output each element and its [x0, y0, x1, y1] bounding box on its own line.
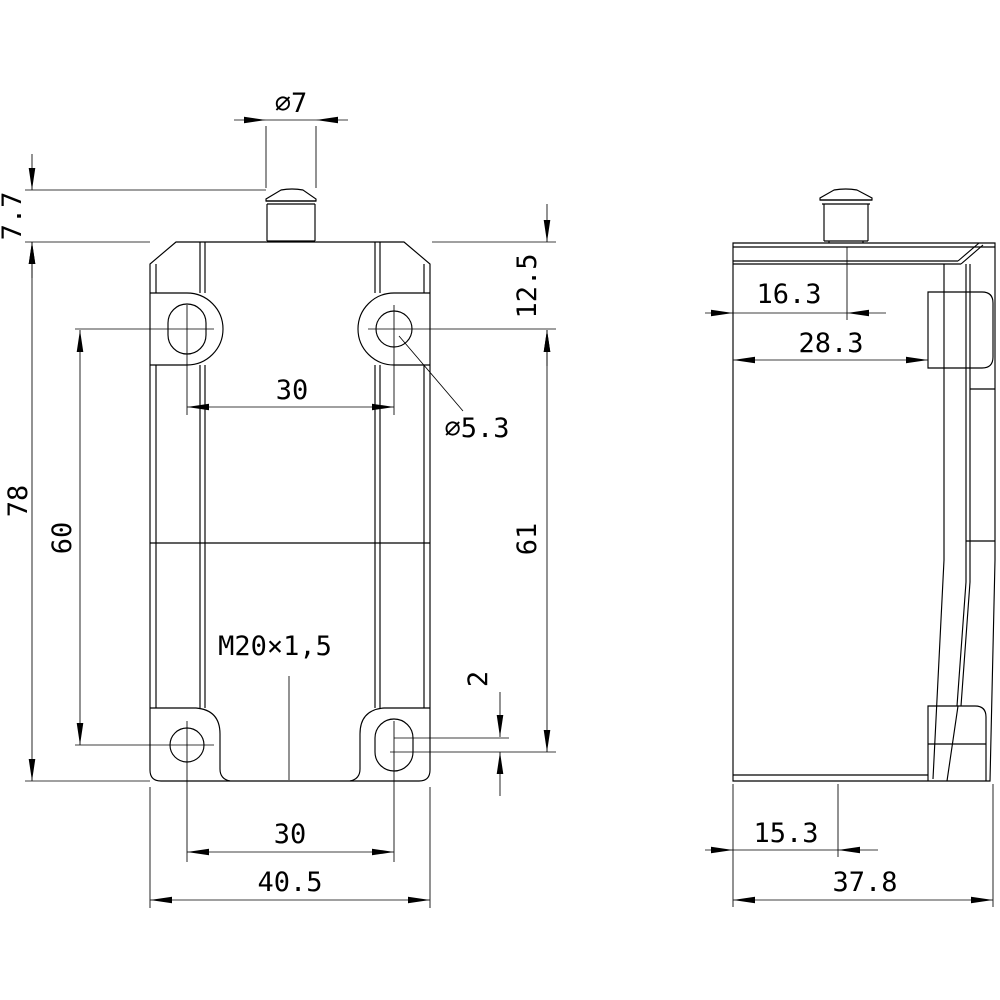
dim-hole-pitch-bottom: 30	[187, 819, 394, 852]
dim-label-pretravel: 7.7	[0, 192, 28, 241]
dim-slot-elongation: 2	[463, 671, 500, 796]
dim-body-height: 78	[3, 242, 150, 781]
crosshair-top-left	[140, 305, 214, 415]
front-body-outline	[150, 242, 430, 781]
side-view: 16.3 28.3 15.3 37.8	[705, 189, 995, 907]
front-mount-ear-bottom-left	[75, 708, 230, 862]
dim-label-height: 78	[3, 485, 34, 518]
dim-label-hole-dia: ∅5.3	[444, 413, 509, 444]
front-view: ∅7 7.7 78 60 30 12.5	[0, 88, 556, 908]
dim-label-plunger-offset: 16.3	[756, 279, 821, 310]
dim-hole-span-vertical: 61	[512, 330, 547, 752]
dim-upper-depth: 28.3	[733, 328, 928, 360]
dim-top-hole-offset: 12.5	[432, 204, 556, 366]
front-mount-ear-bottom-right	[350, 708, 556, 862]
side-lower-boss	[928, 706, 986, 781]
side-plunger	[820, 189, 872, 243]
dim-hole-pitch-vertical: 60	[47, 329, 140, 745]
dim-hole-pitch-top: 30	[187, 375, 394, 407]
dim-label-hole-span-vertical: 61	[512, 523, 543, 556]
front-plunger	[266, 189, 316, 242]
dim-plunger-offset: 16.3	[705, 247, 886, 320]
side-body-outline	[733, 243, 995, 781]
technical-drawing: ∅7 7.7 78 60 30 12.5	[0, 0, 1000, 1000]
dim-label-hole-pitch-bottom: 30	[274, 819, 307, 850]
side-upper-boss	[928, 292, 993, 368]
dim-label-slot-elongation: 2	[463, 671, 494, 687]
crosshair-bottom-left	[75, 721, 214, 862]
dim-label-base-offset: 15.3	[753, 818, 818, 849]
crosshair-top-right	[368, 305, 556, 415]
dim-pretravel: 7.7	[0, 154, 266, 278]
dim-plunger-diameter: ∅7	[234, 88, 348, 188]
dim-hole-diameter-callout: ∅5.3	[399, 336, 510, 444]
drawing-page: ∅7 7.7 78 60 30 12.5	[0, 0, 1000, 1000]
dim-label-conduit-thread: M20×1,5	[218, 631, 332, 662]
dim-label-plunger-dia: ∅7	[275, 88, 308, 119]
front-mount-ear-top-left	[140, 293, 223, 415]
dim-label-width: 40.5	[257, 867, 322, 898]
dim-label-top-hole-offset: 12.5	[512, 253, 543, 318]
dim-label-hole-pitch-vertical: 60	[47, 522, 78, 555]
dim-conduit-thread-callout: M20×1,5	[218, 631, 332, 780]
crosshair-bottom-right	[390, 721, 556, 862]
dim-label-depth: 37.8	[832, 867, 897, 898]
dim-label-hole-pitch-top: 30	[276, 375, 309, 406]
dim-label-upper-depth: 28.3	[798, 328, 863, 359]
leader-line-hole-dia	[399, 336, 463, 411]
